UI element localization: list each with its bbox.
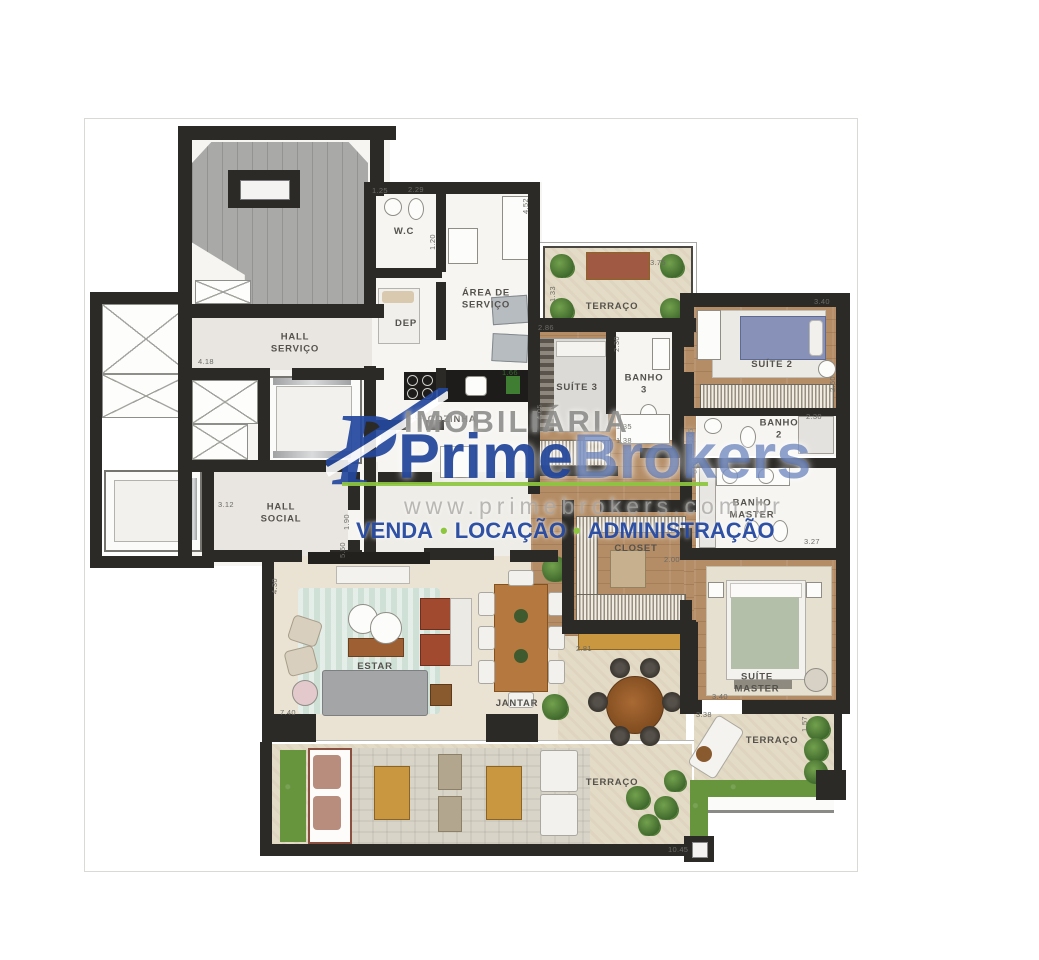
room-label-suite-3: SUÍTE 3 [556, 382, 598, 394]
dimension: 1.35 [616, 422, 632, 431]
wall-segment [510, 550, 558, 562]
chaise [450, 598, 472, 666]
dining-chair [478, 626, 495, 650]
wall-segment [364, 366, 376, 562]
wall-segment [178, 126, 192, 566]
wall-segment [600, 500, 696, 512]
plant [806, 716, 830, 740]
wall-segment [348, 472, 360, 510]
pillow [730, 583, 802, 598]
stair-core-slot [240, 180, 290, 200]
dimension: 1.33 [548, 286, 557, 302]
room-label-suite-master: SUÍTE MASTER [735, 672, 780, 697]
wall-segment [680, 293, 694, 347]
wall-segment [436, 282, 446, 340]
banho2-shower [798, 416, 834, 454]
nightstand [708, 582, 724, 598]
banho2-sink [704, 418, 722, 434]
wall-segment [90, 556, 214, 568]
wall-segment [364, 268, 442, 278]
plant [664, 770, 686, 792]
suite-master-bed [726, 580, 806, 680]
dining-chair [508, 570, 534, 586]
wall-segment [90, 292, 190, 304]
shaft-box [102, 304, 190, 374]
wood-bench [374, 766, 410, 820]
cutting-board [506, 376, 520, 394]
dimension: 3.40 [814, 297, 830, 306]
burner [422, 388, 433, 399]
cushion [438, 796, 462, 832]
wicker-chair [640, 658, 660, 678]
wicker-chair [662, 692, 682, 712]
wall-segment [90, 292, 102, 568]
dimension: 10.45 [668, 845, 688, 854]
closet-wardrobe [598, 516, 686, 533]
wall-segment [178, 368, 264, 380]
wall-segment [680, 528, 692, 548]
burner [422, 375, 433, 386]
dimension: 2.86 [538, 323, 554, 332]
terrace-bench [586, 252, 650, 280]
suite3-wardrobe [531, 440, 611, 466]
wall-pillar [486, 714, 538, 742]
wood-table [430, 684, 452, 706]
dep-bed [378, 288, 420, 344]
shaft-box [192, 380, 258, 424]
room-label-wc: W.C [394, 226, 414, 238]
plant [804, 738, 828, 762]
wall-segment [202, 550, 302, 562]
wall-segment [836, 573, 850, 713]
pillow [556, 341, 606, 357]
dining-table [494, 584, 548, 692]
nightstand [806, 582, 822, 598]
room-label-estar: ESTAR [357, 661, 393, 673]
room-label-terraco-bottom: TERRAÇO [586, 777, 639, 789]
wall-segment [562, 500, 574, 634]
banho-master-shower [699, 466, 716, 548]
dimension: 1.38 [616, 436, 632, 445]
suite2-bed [740, 316, 826, 360]
sofa [322, 670, 428, 716]
closet-wardrobe [576, 594, 686, 622]
wall-segment [364, 182, 540, 194]
wood-bench [486, 766, 522, 820]
wall-pillar [262, 714, 316, 742]
dining-chair [548, 660, 565, 684]
wall-segment [178, 126, 396, 140]
wicker-chair [610, 726, 630, 746]
dimension: 4.30 [270, 578, 279, 594]
wall-segment [640, 448, 684, 458]
dimension: 4.18 [198, 357, 214, 366]
terrace-parapet [260, 844, 694, 856]
dimension: 5.50 [338, 542, 347, 558]
burner [407, 375, 418, 386]
plant [626, 786, 650, 810]
centerpiece [514, 609, 528, 623]
room-label-terraco-master: TERRAÇO [746, 735, 799, 747]
room-label-cozinha: COZINHA [428, 414, 477, 426]
dimension: 1.66 [502, 368, 518, 377]
suite2-desk [697, 310, 721, 360]
room-label-hall-social: HALL SOCIAL [261, 502, 302, 527]
dimension: 2.60 [828, 376, 837, 392]
kitchen-island [440, 446, 476, 478]
pillow [382, 291, 414, 303]
plant [638, 814, 660, 836]
side-table [696, 746, 712, 762]
armchair [804, 668, 828, 692]
dining-chair [478, 660, 495, 684]
room-label-terraco-top: TERRAÇO [586, 301, 639, 313]
dimension: 4.52 [521, 198, 530, 214]
room-label-banho-2: BANHO 2 [760, 418, 799, 443]
cushion [438, 754, 462, 790]
dimension: 7.40 [280, 708, 296, 717]
dimension: 2.29 [408, 185, 424, 194]
room-label-banho-3: BANHO 3 [625, 373, 664, 398]
wall-segment [528, 194, 540, 494]
burner [407, 388, 418, 399]
dryer [491, 333, 528, 363]
white-lounger [540, 750, 578, 792]
wicker-chair [588, 692, 608, 712]
plant [542, 694, 568, 720]
dimension: 2.00 [664, 555, 680, 564]
room-label-area-servico: ÁREA DE SERVIÇO [462, 288, 510, 313]
dimension: 1.25 [372, 186, 388, 195]
white-lounger [540, 794, 578, 836]
dimension: 6.05 [686, 428, 695, 444]
lounger [313, 755, 341, 789]
dimension: 3.27 [804, 537, 820, 546]
room-label-closet: CLOSET [614, 543, 657, 555]
banho3-sink [652, 338, 670, 370]
dimension: 6.90 [690, 458, 699, 474]
dimension: 1.90 [342, 514, 351, 530]
sink [758, 468, 774, 484]
dimension: 1.20 [428, 234, 437, 250]
wall-segment [836, 293, 850, 573]
wall-segment [680, 548, 850, 560]
wall-segment [378, 472, 432, 484]
wall-segment [178, 304, 384, 318]
stove [404, 372, 436, 400]
duvet [731, 597, 799, 669]
dimension: 3.40 [712, 692, 728, 701]
kitchen-sink [465, 376, 487, 396]
wicker-chair [640, 726, 660, 746]
dimension: 3.75 [650, 258, 666, 267]
room-label-hall-servico: HALL SERVIÇO [271, 332, 319, 357]
room-label-banho-master: BANHO MASTER [730, 498, 775, 523]
wall-segment [562, 620, 696, 634]
wc-sink [384, 198, 402, 216]
tv-console [336, 566, 410, 584]
dimension: 3.12 [218, 500, 234, 509]
wall-segment [680, 458, 836, 468]
wall-segment [424, 548, 494, 560]
bidet [772, 520, 788, 542]
pillow [809, 320, 823, 356]
dimension: 4.05 [535, 404, 544, 420]
plant [654, 796, 678, 820]
wall-segment [680, 444, 692, 458]
dimension: 1.57 [800, 716, 809, 732]
wall-segment [258, 368, 270, 468]
dimension: 2.81 [576, 644, 592, 653]
round-table [606, 676, 664, 734]
wall-segment [364, 420, 406, 430]
wc-toilet [408, 198, 424, 220]
path-edge [708, 810, 834, 813]
wall-segment [190, 460, 348, 472]
terrace-parapet [260, 742, 272, 854]
wall-pillar [816, 770, 846, 800]
floor-plan-canvas: HALL SERVIÇO HALL SOCIAL W.C DEP ÁREA DE… [0, 0, 1039, 960]
suite2-wardrobe [700, 384, 834, 410]
wall-segment [364, 194, 376, 318]
drain-box [692, 842, 708, 858]
shaft-box [195, 280, 251, 304]
wall-segment [436, 368, 446, 390]
room-label-suite-2: SUÍTE 2 [751, 359, 793, 371]
dining-chair [478, 592, 495, 616]
wall-segment [528, 466, 618, 476]
wall-segment [202, 472, 214, 560]
plant [550, 254, 574, 278]
closet-ottoman [610, 550, 646, 588]
wall-segment [436, 194, 446, 272]
centerpiece [514, 649, 528, 663]
dimension: 3.38 [696, 710, 712, 719]
dimension: 1.62 [408, 412, 424, 421]
lounger-pad [308, 748, 352, 844]
tv-wall [308, 552, 430, 564]
grass-strip [690, 780, 708, 844]
room-label-jantar: JANTAR [496, 698, 539, 710]
shaft-box [102, 374, 190, 418]
laundry-sink [448, 228, 478, 264]
wicker-chair [610, 658, 630, 678]
coffee-table [370, 612, 402, 644]
sink [722, 468, 738, 484]
room-label-dep: DEP [395, 318, 417, 330]
wall-segment [742, 700, 850, 714]
dimension: 2.30 [612, 336, 621, 352]
round-side-table [292, 680, 318, 706]
lounger [313, 796, 341, 830]
toilet [744, 520, 760, 542]
dimension: 2.30 [806, 412, 822, 421]
wall-segment [684, 622, 698, 714]
banho2-toilet [740, 426, 756, 448]
elevator-door [273, 451, 351, 458]
planter [280, 750, 306, 842]
shaft-box [192, 424, 248, 460]
